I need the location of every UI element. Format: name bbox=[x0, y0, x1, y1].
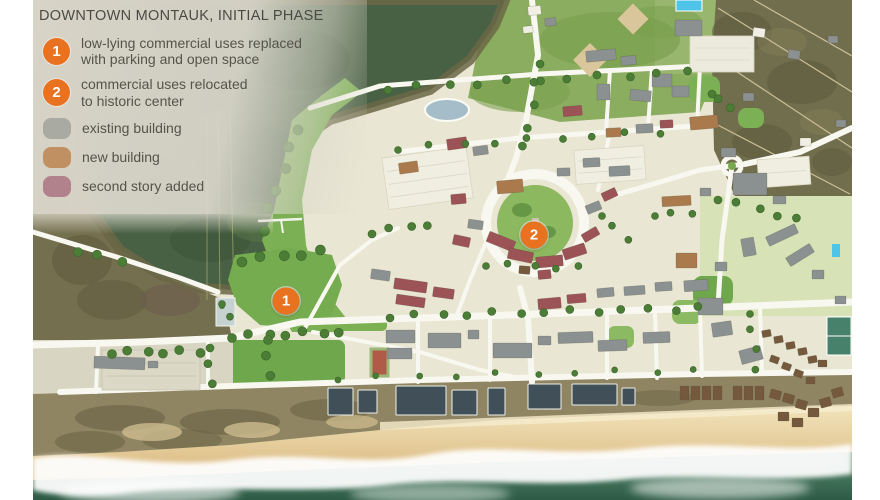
legend-title: DOWNTOWN MONTAUK, INITIAL PHASE bbox=[39, 8, 367, 24]
legend-marker-1-badge: 1 bbox=[43, 38, 70, 65]
legend-item-1-label: low-lying commercial uses replaced with … bbox=[81, 35, 302, 67]
pool-right bbox=[832, 244, 840, 257]
second-story-swatch bbox=[43, 176, 71, 197]
legend-marker-2-badge: 2 bbox=[43, 79, 70, 106]
legend-swatch-second-story: second story added bbox=[43, 176, 367, 197]
existing-building-label: existing building bbox=[82, 120, 182, 136]
map-marker-1: 1 bbox=[273, 288, 300, 315]
legend-swatch-new: new building bbox=[43, 147, 367, 168]
pool bbox=[676, 0, 702, 11]
legend-item-2-label: commercial uses relocated to historic ce… bbox=[81, 76, 248, 108]
legend-item-1: 1 low-lying commercial uses replaced wit… bbox=[43, 35, 367, 67]
legend-swatch-existing: existing building bbox=[43, 118, 367, 139]
second-story-label: second story added bbox=[82, 178, 204, 194]
map-marker-2: 2 bbox=[521, 222, 548, 249]
existing-building-swatch bbox=[43, 118, 71, 139]
small-pond bbox=[425, 99, 469, 121]
clay-courts bbox=[371, 349, 388, 376]
legend-panel: DOWNTOWN MONTAUK, INITIAL PHASE 1 low-ly… bbox=[33, 0, 367, 214]
new-building-swatch bbox=[43, 147, 71, 168]
legend-item-2: 2 commercial uses relocated to historic … bbox=[43, 76, 367, 108]
map-canvas: 12 DOWNTOWN MONTAUK, INITIAL PHASE 1 low… bbox=[33, 0, 852, 500]
new-building-label: new building bbox=[82, 149, 160, 165]
page: 12 DOWNTOWN MONTAUK, INITIAL PHASE 1 low… bbox=[0, 0, 880, 500]
